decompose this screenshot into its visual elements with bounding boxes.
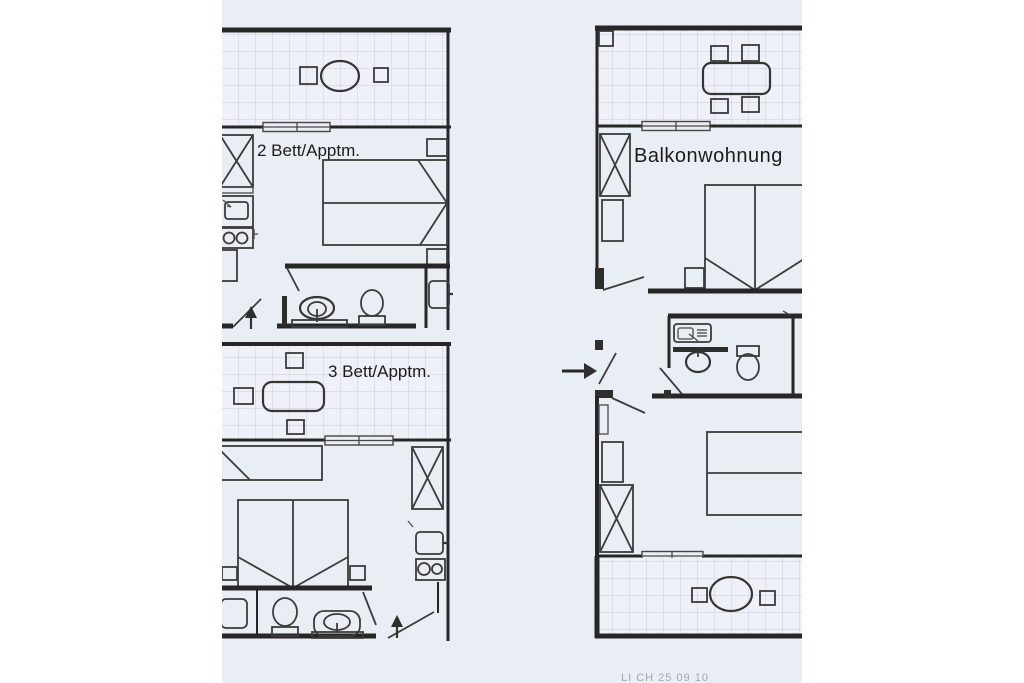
footer-code: LI CH 25 09 10 — [621, 672, 709, 683]
door-jamb — [595, 340, 603, 350]
window-symbol — [263, 122, 330, 132]
window-symbol — [325, 436, 393, 445]
apartment-3bett-label: 3 Bett/Apptm. — [328, 362, 431, 381]
balcony-bottom — [595, 556, 802, 638]
balcony-2bett — [218, 28, 451, 132]
window-symbol — [642, 121, 710, 131]
door-jamb — [664, 390, 671, 398]
floor-plan-drawing: 2 Bett/Apptm. — [0, 0, 1024, 683]
scanned-floorplan-page: 2 Bett/Apptm. — [0, 0, 1024, 683]
apartment-balcony-label: Balkonwohnung — [634, 145, 783, 167]
apartment-2bett-label: 2 Bett/Apptm. — [257, 141, 360, 160]
door-jamb — [595, 268, 604, 289]
